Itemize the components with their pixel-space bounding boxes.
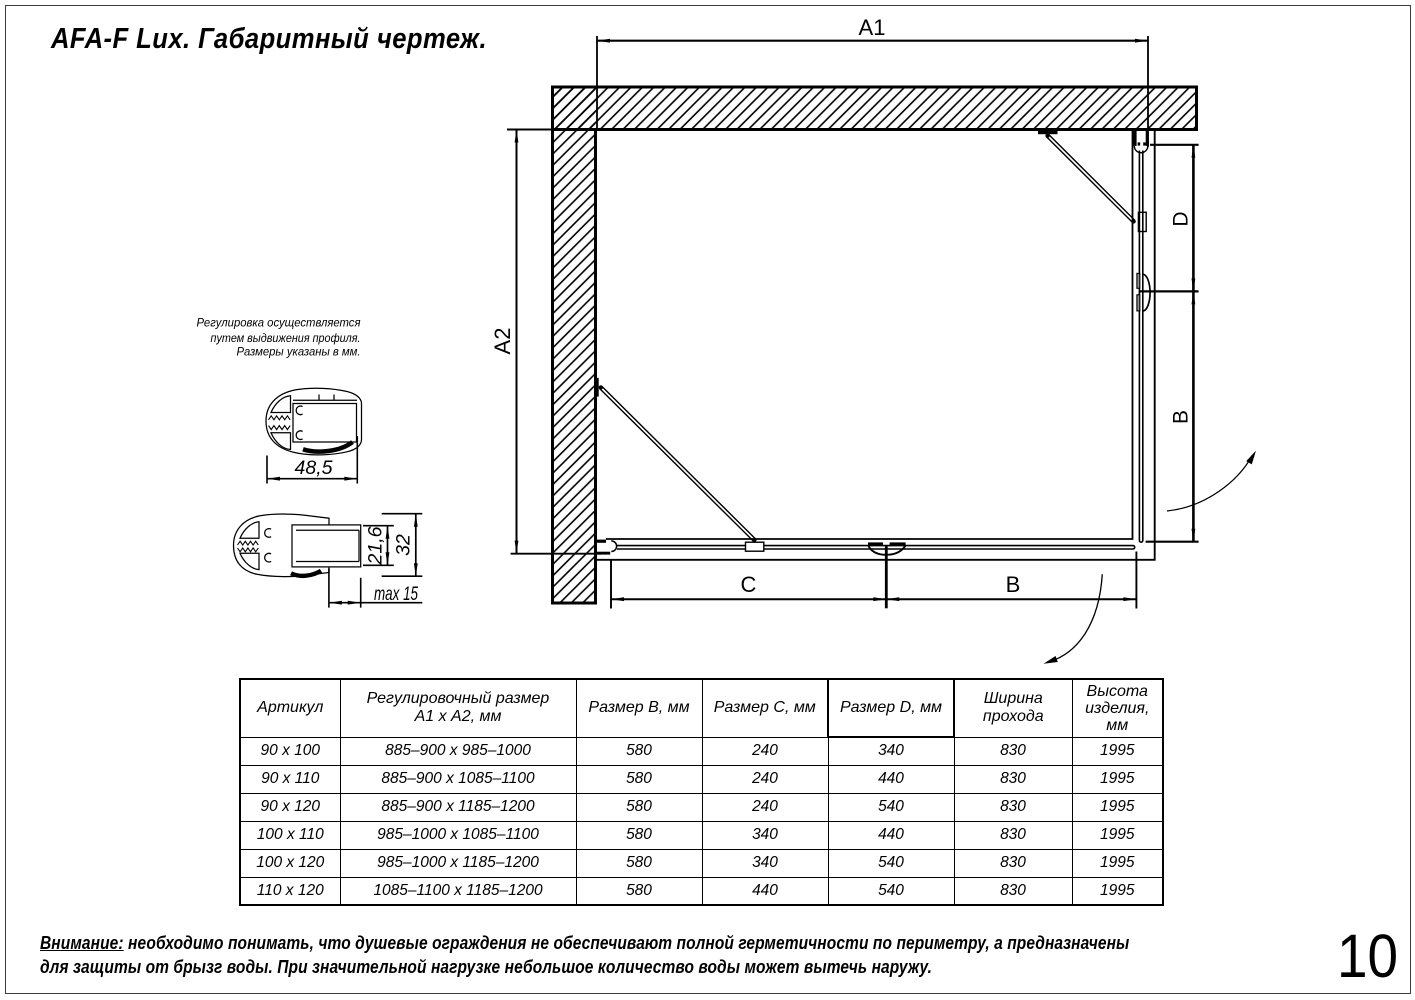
- svg-text:путем выдвижения профиля.: путем выдвижения профиля.: [211, 331, 361, 345]
- svg-text:C: C: [741, 572, 757, 597]
- svg-text:32: 32: [393, 534, 415, 556]
- svg-text:48,5: 48,5: [295, 457, 333, 479]
- svg-text:A1: A1: [859, 15, 886, 40]
- svg-text:Размеры указаны в мм.: Размеры указаны в мм.: [237, 344, 361, 358]
- svg-text:B: B: [1170, 410, 1193, 424]
- svg-text:Регулировка осуществляется: Регулировка осуществляется: [197, 315, 361, 329]
- svg-text:B: B: [1006, 572, 1021, 597]
- svg-text:D: D: [1170, 211, 1193, 226]
- svg-text:max 15: max 15: [374, 583, 418, 605]
- svg-text:21,6: 21,6: [365, 526, 387, 565]
- svg-text:A2: A2: [490, 328, 515, 355]
